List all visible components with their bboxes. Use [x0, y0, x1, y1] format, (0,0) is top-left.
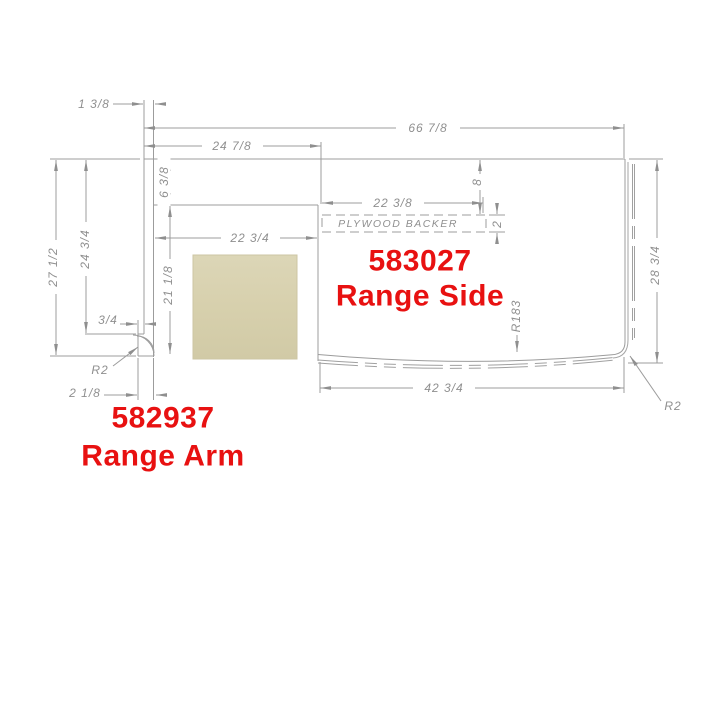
dimension-overall-width: 66 7/8 — [144, 121, 624, 135]
dimension-backsplash-strip-height: 6 3/8 — [157, 158, 171, 206]
dim-text-foot-step-width: 3/4 — [98, 313, 118, 327]
dim-text-foot-width: 2 1/8 — [68, 386, 101, 400]
plywood-backer-label: PLYWOOD BACKER — [338, 218, 458, 230]
dimension-backer-thickness: 2 — [490, 205, 504, 242]
side-bottom-curve — [318, 355, 612, 362]
radius-text-front-edge: R183 — [509, 300, 523, 333]
callout-front-edge-radius: R183 — [509, 300, 523, 352]
side-right-edge — [612, 159, 625, 355]
dimension-side-height: 28 3/4 — [648, 160, 662, 363]
plywood-backer: PLYWOOD BACKER — [322, 215, 486, 232]
dim-text-backsplash-strip-height: 6 3/8 — [157, 166, 171, 198]
dimension-cutout-width: 22 3/4 — [155, 231, 317, 245]
dim-text-overall-width: 66 7/8 — [408, 121, 447, 135]
part-name-side: Range Side — [336, 280, 504, 313]
arm-foot-fillet-outer — [133, 335, 154, 356]
callout-arm-corner-radius: R2 — [91, 347, 138, 377]
dimension-backer-offset-height: 8 — [470, 160, 484, 214]
dim-text-arm-upper-height: 24 3/4 — [78, 229, 92, 269]
radius-text-arm-corner: R2 — [91, 363, 108, 377]
extension-lines — [50, 124, 663, 400]
dimension-foot-width: 2 1/8 — [68, 386, 167, 400]
dim-text-backer-offset-height: 8 — [470, 178, 484, 186]
part-number-arm: 582937 — [111, 402, 214, 435]
laminate-color-swatch — [193, 255, 297, 359]
radius-text-side-corner: R2 — [664, 399, 681, 413]
range-arm-outline — [133, 100, 154, 357]
dim-text-left-section-width: 24 7/8 — [211, 139, 251, 153]
dimension-arm-width-top: 1 3/8 — [78, 97, 165, 111]
countertop-drawing: 1 3/8 66 7/8 24 7/8 27 1/2 24 3/4 3/4 2 … — [0, 0, 723, 723]
part-name-arm: Range Arm — [81, 440, 244, 473]
dim-text-bottom-width: 42 3/4 — [424, 381, 463, 395]
dimension-cutout-height: 21 1/8 — [161, 206, 175, 354]
dimension-bottom-width: 42 3/4 — [320, 381, 624, 395]
dim-text-arm-height: 27 1/2 — [46, 247, 60, 287]
dimension-backer-width: 22 3/8 — [322, 196, 483, 210]
arm-foot-fillet-inner — [137, 336, 154, 353]
dim-text-backer-thickness: 2 — [490, 220, 504, 229]
dim-text-arm-width-top: 1 3/8 — [78, 97, 110, 111]
dim-text-backer-width: 22 3/8 — [372, 196, 412, 210]
callout-side-corner-radius: R2 — [630, 356, 682, 413]
dim-text-cutout-height: 21 1/8 — [161, 265, 175, 305]
part-number-side: 583027 — [368, 245, 471, 278]
dimension-arm-height: 27 1/2 — [46, 160, 60, 355]
side-right-edge-2 — [613, 162, 628, 358]
dimension-left-section-width: 24 7/8 — [144, 139, 321, 153]
dim-text-cutout-width: 22 3/4 — [229, 231, 269, 245]
dimension-arm-upper-height: 24 3/4 — [78, 160, 92, 333]
cad-drawing-page: 1 3/8 66 7/8 24 7/8 27 1/2 24 3/4 3/4 2 … — [0, 0, 723, 723]
dim-text-side-height: 28 3/4 — [648, 245, 662, 285]
